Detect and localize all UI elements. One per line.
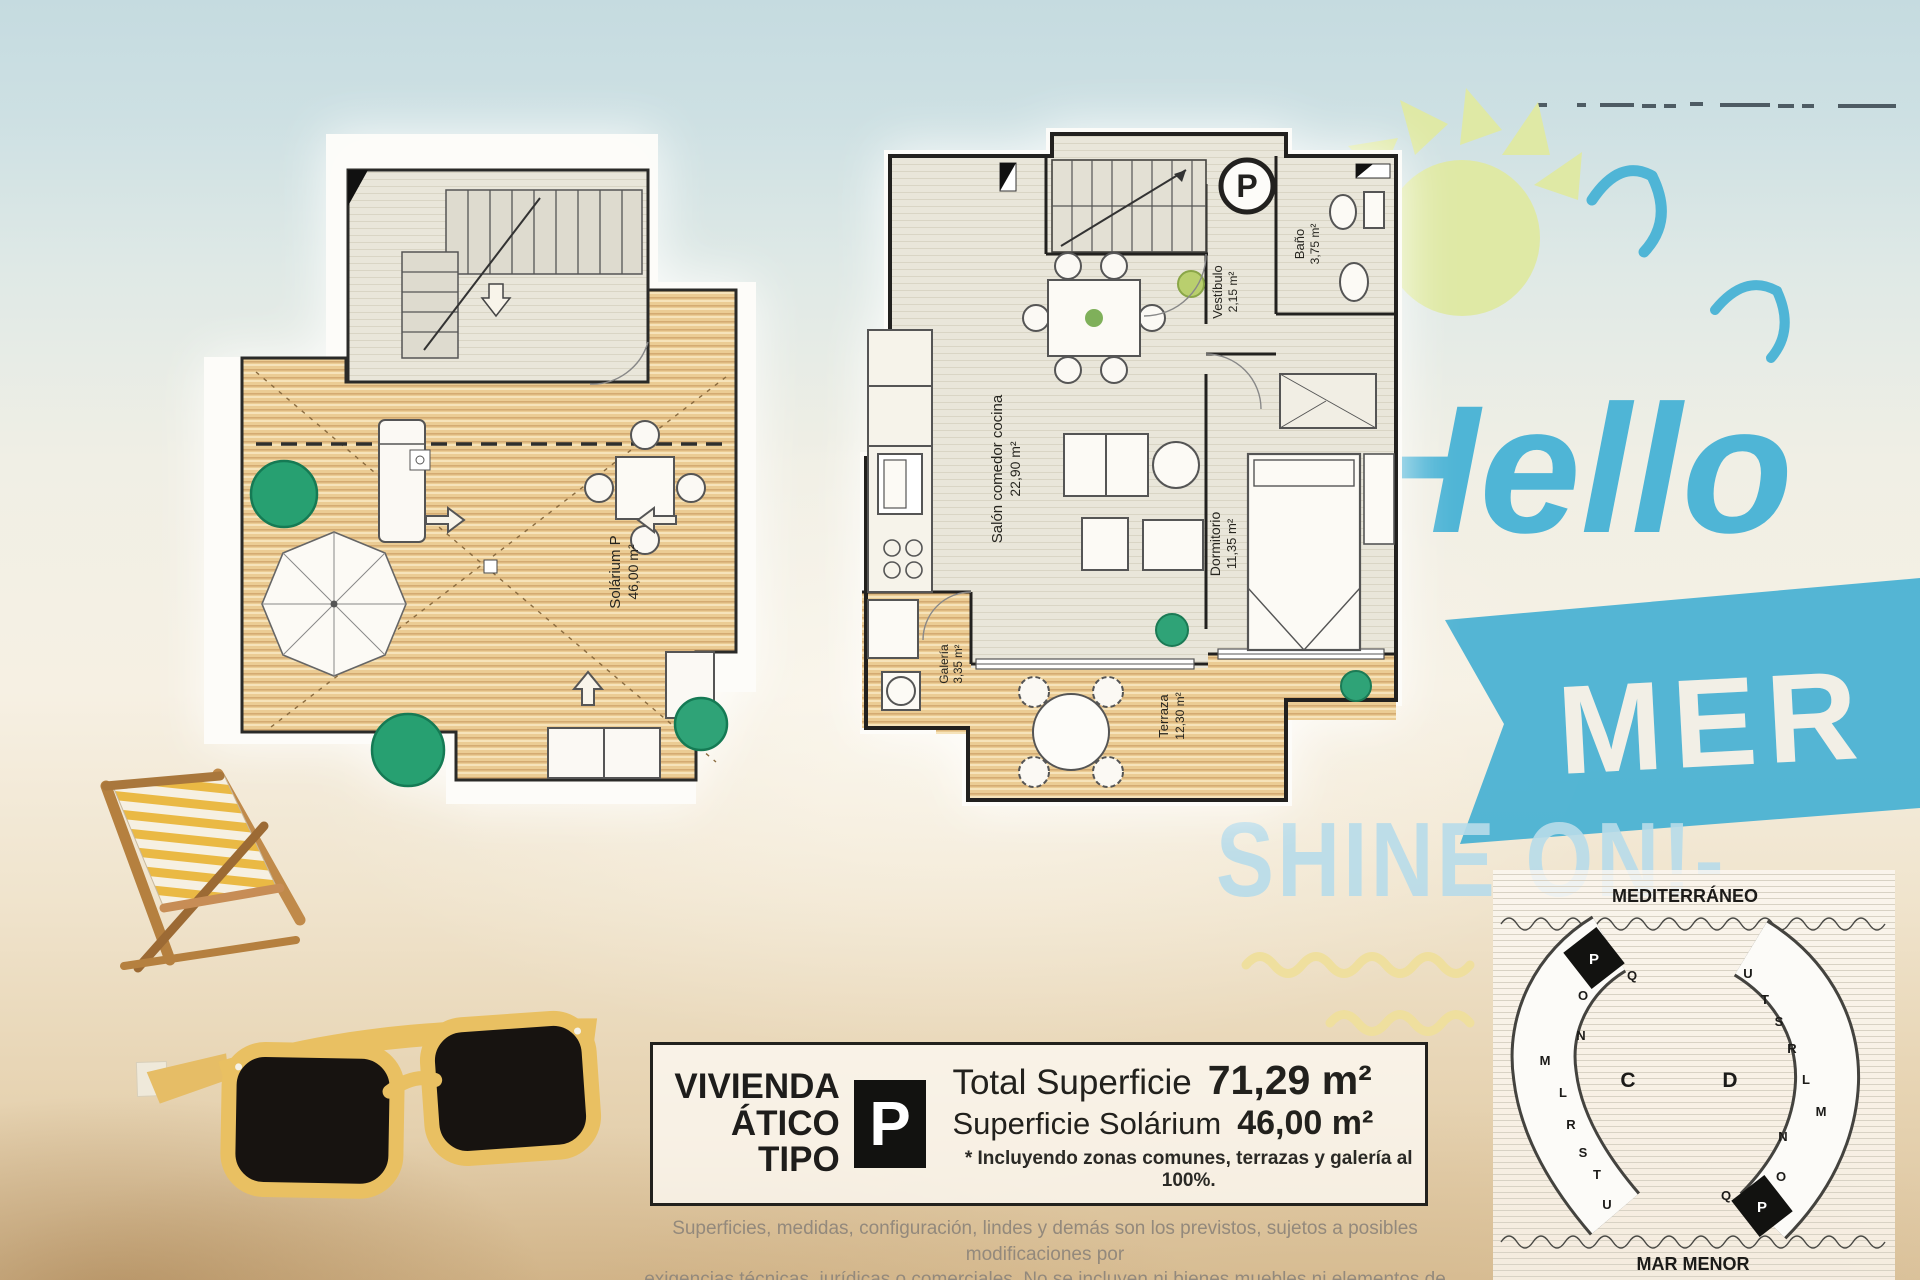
unit-label: M	[1816, 1104, 1827, 1119]
unit-label: U	[1602, 1197, 1611, 1212]
terrace-table-set	[1019, 677, 1123, 787]
legal-disclaimer: Superficies, medidas, configuración, lin…	[640, 1216, 1450, 1280]
parasol-icon	[262, 532, 406, 676]
lagoon-label: MAR MENOR	[1637, 1254, 1750, 1274]
total-surface-value: 71,29 m²	[1208, 1057, 1372, 1104]
unit-label: Q	[1721, 1188, 1731, 1203]
sunglasses	[128, 998, 633, 1213]
bano-area: 3,75 m²	[1308, 224, 1322, 265]
unit-label: N	[1576, 1028, 1585, 1043]
unit-title: VIVIENDA ÁTICO TIPO	[653, 1069, 840, 1178]
terraza-label: Terraza	[1156, 694, 1171, 738]
unit-label: O	[1578, 988, 1588, 1003]
unit-label: T	[1593, 1167, 1601, 1182]
unit-label: S	[1579, 1145, 1588, 1160]
unit-label: L	[1559, 1085, 1567, 1100]
brochure-page: Hello MER SHINE ON!- MEDITERRÁNEO	[0, 0, 1920, 1280]
disclaimer-line2: exigencias técnicas, jurídicas o comerci…	[640, 1267, 1450, 1280]
disclaimer-line1: Superficies, medidas, configuración, lin…	[640, 1216, 1450, 1267]
dormitorio-area: 11,35 m²	[1224, 518, 1239, 569]
seagull-icons	[1592, 171, 1785, 358]
unit-info-box: VIVIENDA ÁTICO TIPO P Total Superficie 7…	[650, 1042, 1428, 1206]
unit-type-badge: P	[1221, 160, 1273, 212]
terraza-area: 12,30 m²	[1173, 692, 1187, 739]
drain-marker	[484, 560, 497, 573]
solarium-floor-plan: Solárium P 46,00 m²	[196, 132, 768, 816]
wave-squiggles	[1246, 957, 1470, 1032]
salon-label: Salón comedor cocina	[989, 394, 1006, 543]
stair-room	[348, 170, 648, 384]
unit-label: O	[1776, 1169, 1786, 1184]
unit-label: U	[1743, 966, 1752, 981]
unit-title-line2: ÁTICO TIPO	[653, 1106, 840, 1179]
sun-lounger	[379, 420, 425, 542]
wall-light	[410, 450, 430, 470]
unit-label: S	[1775, 1014, 1784, 1029]
vestibulo-label: Vestíbulo	[1210, 265, 1225, 319]
kitchen-fixtures	[868, 330, 932, 592]
unit-title-line1: VIVIENDA	[653, 1069, 840, 1105]
site-plan: MEDITERRÁNEO P Q O N M L R S T U C	[1493, 870, 1895, 1280]
galeria-label: Galería	[937, 644, 951, 684]
unit-label: Q	[1627, 968, 1637, 983]
solarium-surface-label: Superficie Solárium	[952, 1106, 1221, 1142]
unit-label: P	[1589, 951, 1599, 968]
main-floor-plan: P	[856, 124, 1416, 816]
unit-label: P	[1757, 1199, 1767, 1216]
unit-type-letter-badge: P	[854, 1080, 927, 1168]
surface-values: Total Superficie 71,29 m² Superficie Sol…	[952, 1057, 1425, 1192]
solarium-area: 46,00 m²	[625, 544, 641, 600]
svg-text:P: P	[1236, 168, 1257, 204]
unit-label: M	[1540, 1053, 1551, 1068]
unit-label: T	[1761, 992, 1769, 1007]
bano-label: Baño	[1292, 229, 1307, 259]
galeria-area: 3,35 m²	[953, 644, 965, 683]
dormitorio-label: Dormitorio	[1207, 512, 1223, 577]
deck-chair	[68, 768, 308, 983]
unit-label: L	[1802, 1072, 1810, 1087]
cropped-logo-marks	[1537, 102, 1896, 108]
unit-label: N	[1778, 1129, 1787, 1144]
unit-label: R	[1566, 1117, 1576, 1132]
solarium-label: Solárium P	[607, 535, 624, 608]
vestibulo-area: 2,15 m²	[1226, 272, 1240, 313]
total-surface-label: Total Superficie	[952, 1063, 1191, 1103]
solarium-surface-value: 46,00 m²	[1237, 1104, 1373, 1143]
salon-area: 22,90 m²	[1007, 441, 1023, 497]
unit-label: R	[1787, 1041, 1797, 1056]
surface-note: * Incluyendo zonas comunes, terrazas y g…	[952, 1148, 1425, 1192]
sea-label: MEDITERRÁNEO	[1612, 885, 1758, 906]
ribbon-word: MER	[1554, 644, 1871, 801]
building-d-label: D	[1722, 1069, 1737, 1092]
table-plant	[1085, 309, 1103, 327]
building-c-label: C	[1620, 1069, 1635, 1092]
